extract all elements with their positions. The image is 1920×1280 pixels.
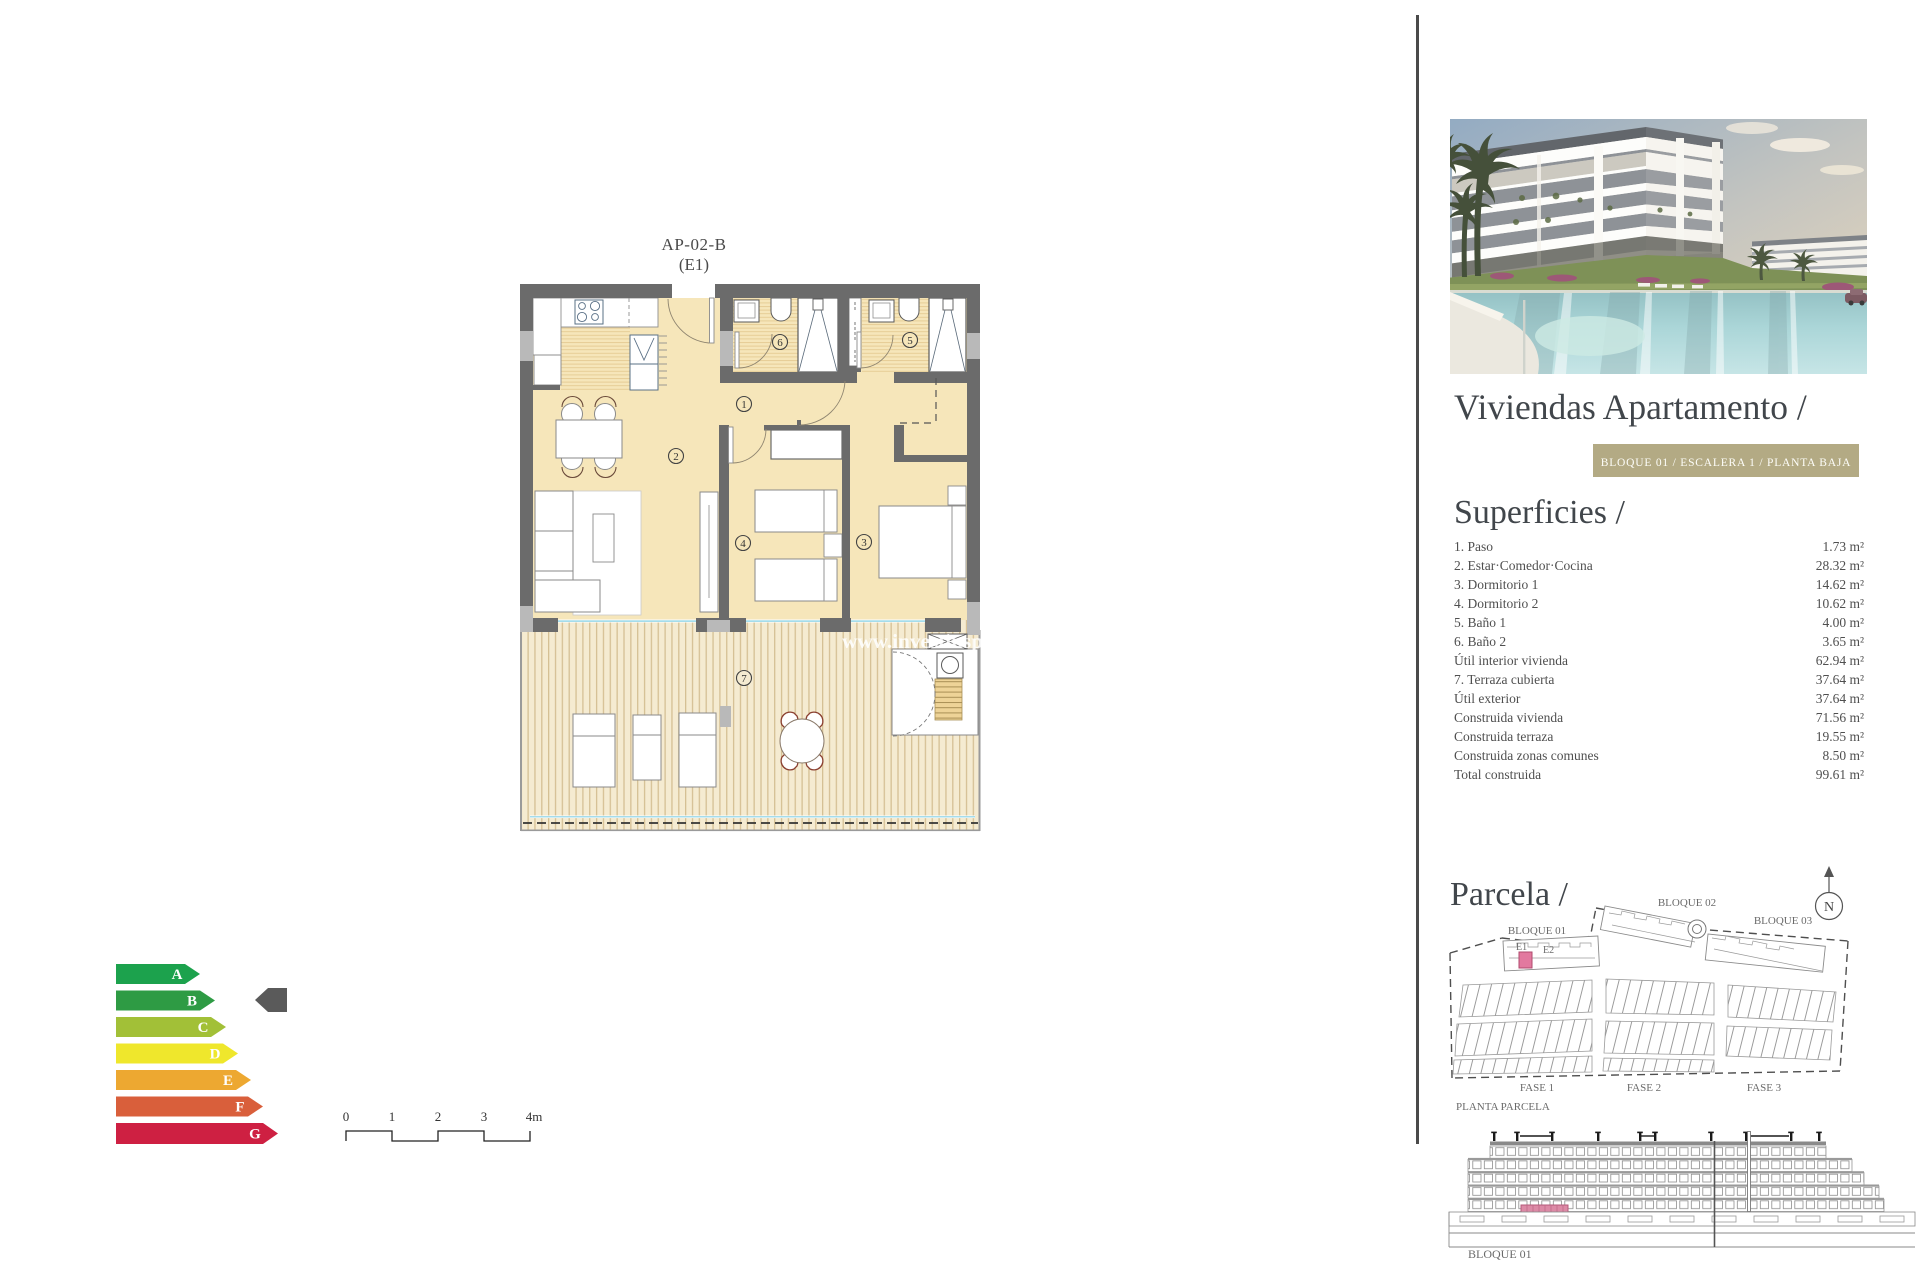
svg-text:28.32 m²: 28.32 m²	[1816, 558, 1864, 573]
svg-text:FASE 3: FASE 3	[1747, 1082, 1782, 1094]
svg-text:BLOQUE 02: BLOQUE 02	[1658, 897, 1716, 909]
svg-text:2. Estar·Comedor·Cocina: 2. Estar·Comedor·Cocina	[1454, 558, 1593, 573]
svg-text:F: F	[235, 1100, 244, 1116]
svg-text:19.55 m²: 19.55 m²	[1816, 729, 1864, 744]
svg-text:Total construida: Total construida	[1454, 767, 1541, 782]
svg-text:D: D	[210, 1047, 221, 1063]
svg-text:BLOQUE 01: BLOQUE 01	[1468, 1247, 1532, 1261]
svg-text:PLANTA PARCELA: PLANTA PARCELA	[1456, 1101, 1550, 1113]
svg-text:Superficies /: Superficies /	[1454, 494, 1625, 531]
svg-text:Útil exterior: Útil exterior	[1454, 691, 1521, 706]
svg-text:E2: E2	[1543, 945, 1554, 956]
svg-text:Útil interior vivienda: Útil interior vivienda	[1454, 653, 1568, 668]
svg-text:Construida vivienda: Construida vivienda	[1454, 710, 1563, 725]
svg-text:E1: E1	[1516, 942, 1527, 953]
svg-text:BLOQUE 01 / ESCALERA 1 / PLANT: BLOQUE 01 / ESCALERA 1 / PLANTA BAJA	[1601, 457, 1852, 469]
svg-text:AP-02-B: AP-02-B	[662, 235, 727, 254]
svg-text:4m: 4m	[526, 1109, 543, 1124]
svg-text:1.73 m²: 1.73 m²	[1822, 539, 1864, 554]
svg-text:37.64 m²: 37.64 m²	[1816, 672, 1864, 687]
svg-text:B: B	[187, 994, 197, 1010]
svg-text:7: 7	[741, 673, 747, 685]
svg-text:A: A	[172, 967, 183, 983]
svg-text:62.94 m²: 62.94 m²	[1816, 653, 1864, 668]
svg-text:(E1): (E1)	[679, 255, 709, 274]
svg-text:E: E	[223, 1073, 233, 1089]
svg-text:1: 1	[389, 1109, 396, 1124]
svg-text:FASE 2: FASE 2	[1627, 1082, 1661, 1094]
svg-text:4.00 m²: 4.00 m²	[1822, 615, 1864, 630]
svg-text:14.62 m²: 14.62 m²	[1816, 577, 1864, 592]
svg-text:www.investinsp: www.investinsp	[842, 631, 983, 653]
svg-text:Parcela /: Parcela /	[1450, 876, 1569, 913]
svg-text:3: 3	[861, 537, 867, 549]
svg-text:4. Dormitorio 2: 4. Dormitorio 2	[1454, 596, 1538, 611]
svg-text:4: 4	[740, 538, 746, 550]
svg-text:6. Baño 2: 6. Baño 2	[1454, 634, 1506, 649]
svg-text:1. Paso: 1. Paso	[1454, 539, 1493, 554]
svg-text:C: C	[198, 1020, 209, 1036]
svg-text:BLOQUE 03: BLOQUE 03	[1754, 915, 1813, 927]
svg-text:99.61 m²: 99.61 m²	[1816, 767, 1864, 782]
svg-text:2: 2	[673, 451, 679, 463]
svg-text:7. Terraza cubierta: 7. Terraza cubierta	[1454, 672, 1554, 687]
svg-text:5: 5	[907, 335, 913, 347]
svg-text:6: 6	[777, 337, 783, 349]
svg-text:3: 3	[481, 1109, 488, 1124]
svg-text:1: 1	[741, 399, 747, 411]
svg-text:10.62 m²: 10.62 m²	[1816, 596, 1864, 611]
svg-text:0: 0	[343, 1109, 350, 1124]
svg-text:3.65 m²: 3.65 m²	[1822, 634, 1864, 649]
svg-text:2: 2	[435, 1109, 442, 1124]
svg-text:8.50 m²: 8.50 m²	[1822, 748, 1864, 763]
svg-text:71.56 m²: 71.56 m²	[1816, 710, 1864, 725]
svg-text:3. Dormitorio 1: 3. Dormitorio 1	[1454, 577, 1538, 592]
svg-text:FASE 1: FASE 1	[1520, 1082, 1554, 1094]
svg-text:BLOQUE 01: BLOQUE 01	[1508, 925, 1566, 937]
svg-text:N: N	[1824, 900, 1834, 915]
svg-text:5. Baño 1: 5. Baño 1	[1454, 615, 1506, 630]
svg-text:Viviendas Apartamento /: Viviendas Apartamento /	[1454, 387, 1807, 427]
svg-text:Construida zonas comunes: Construida zonas comunes	[1454, 748, 1599, 763]
svg-text:G: G	[249, 1127, 261, 1143]
svg-text:Construida terraza: Construida terraza	[1454, 729, 1553, 744]
svg-text:37.64 m²: 37.64 m²	[1816, 691, 1864, 706]
